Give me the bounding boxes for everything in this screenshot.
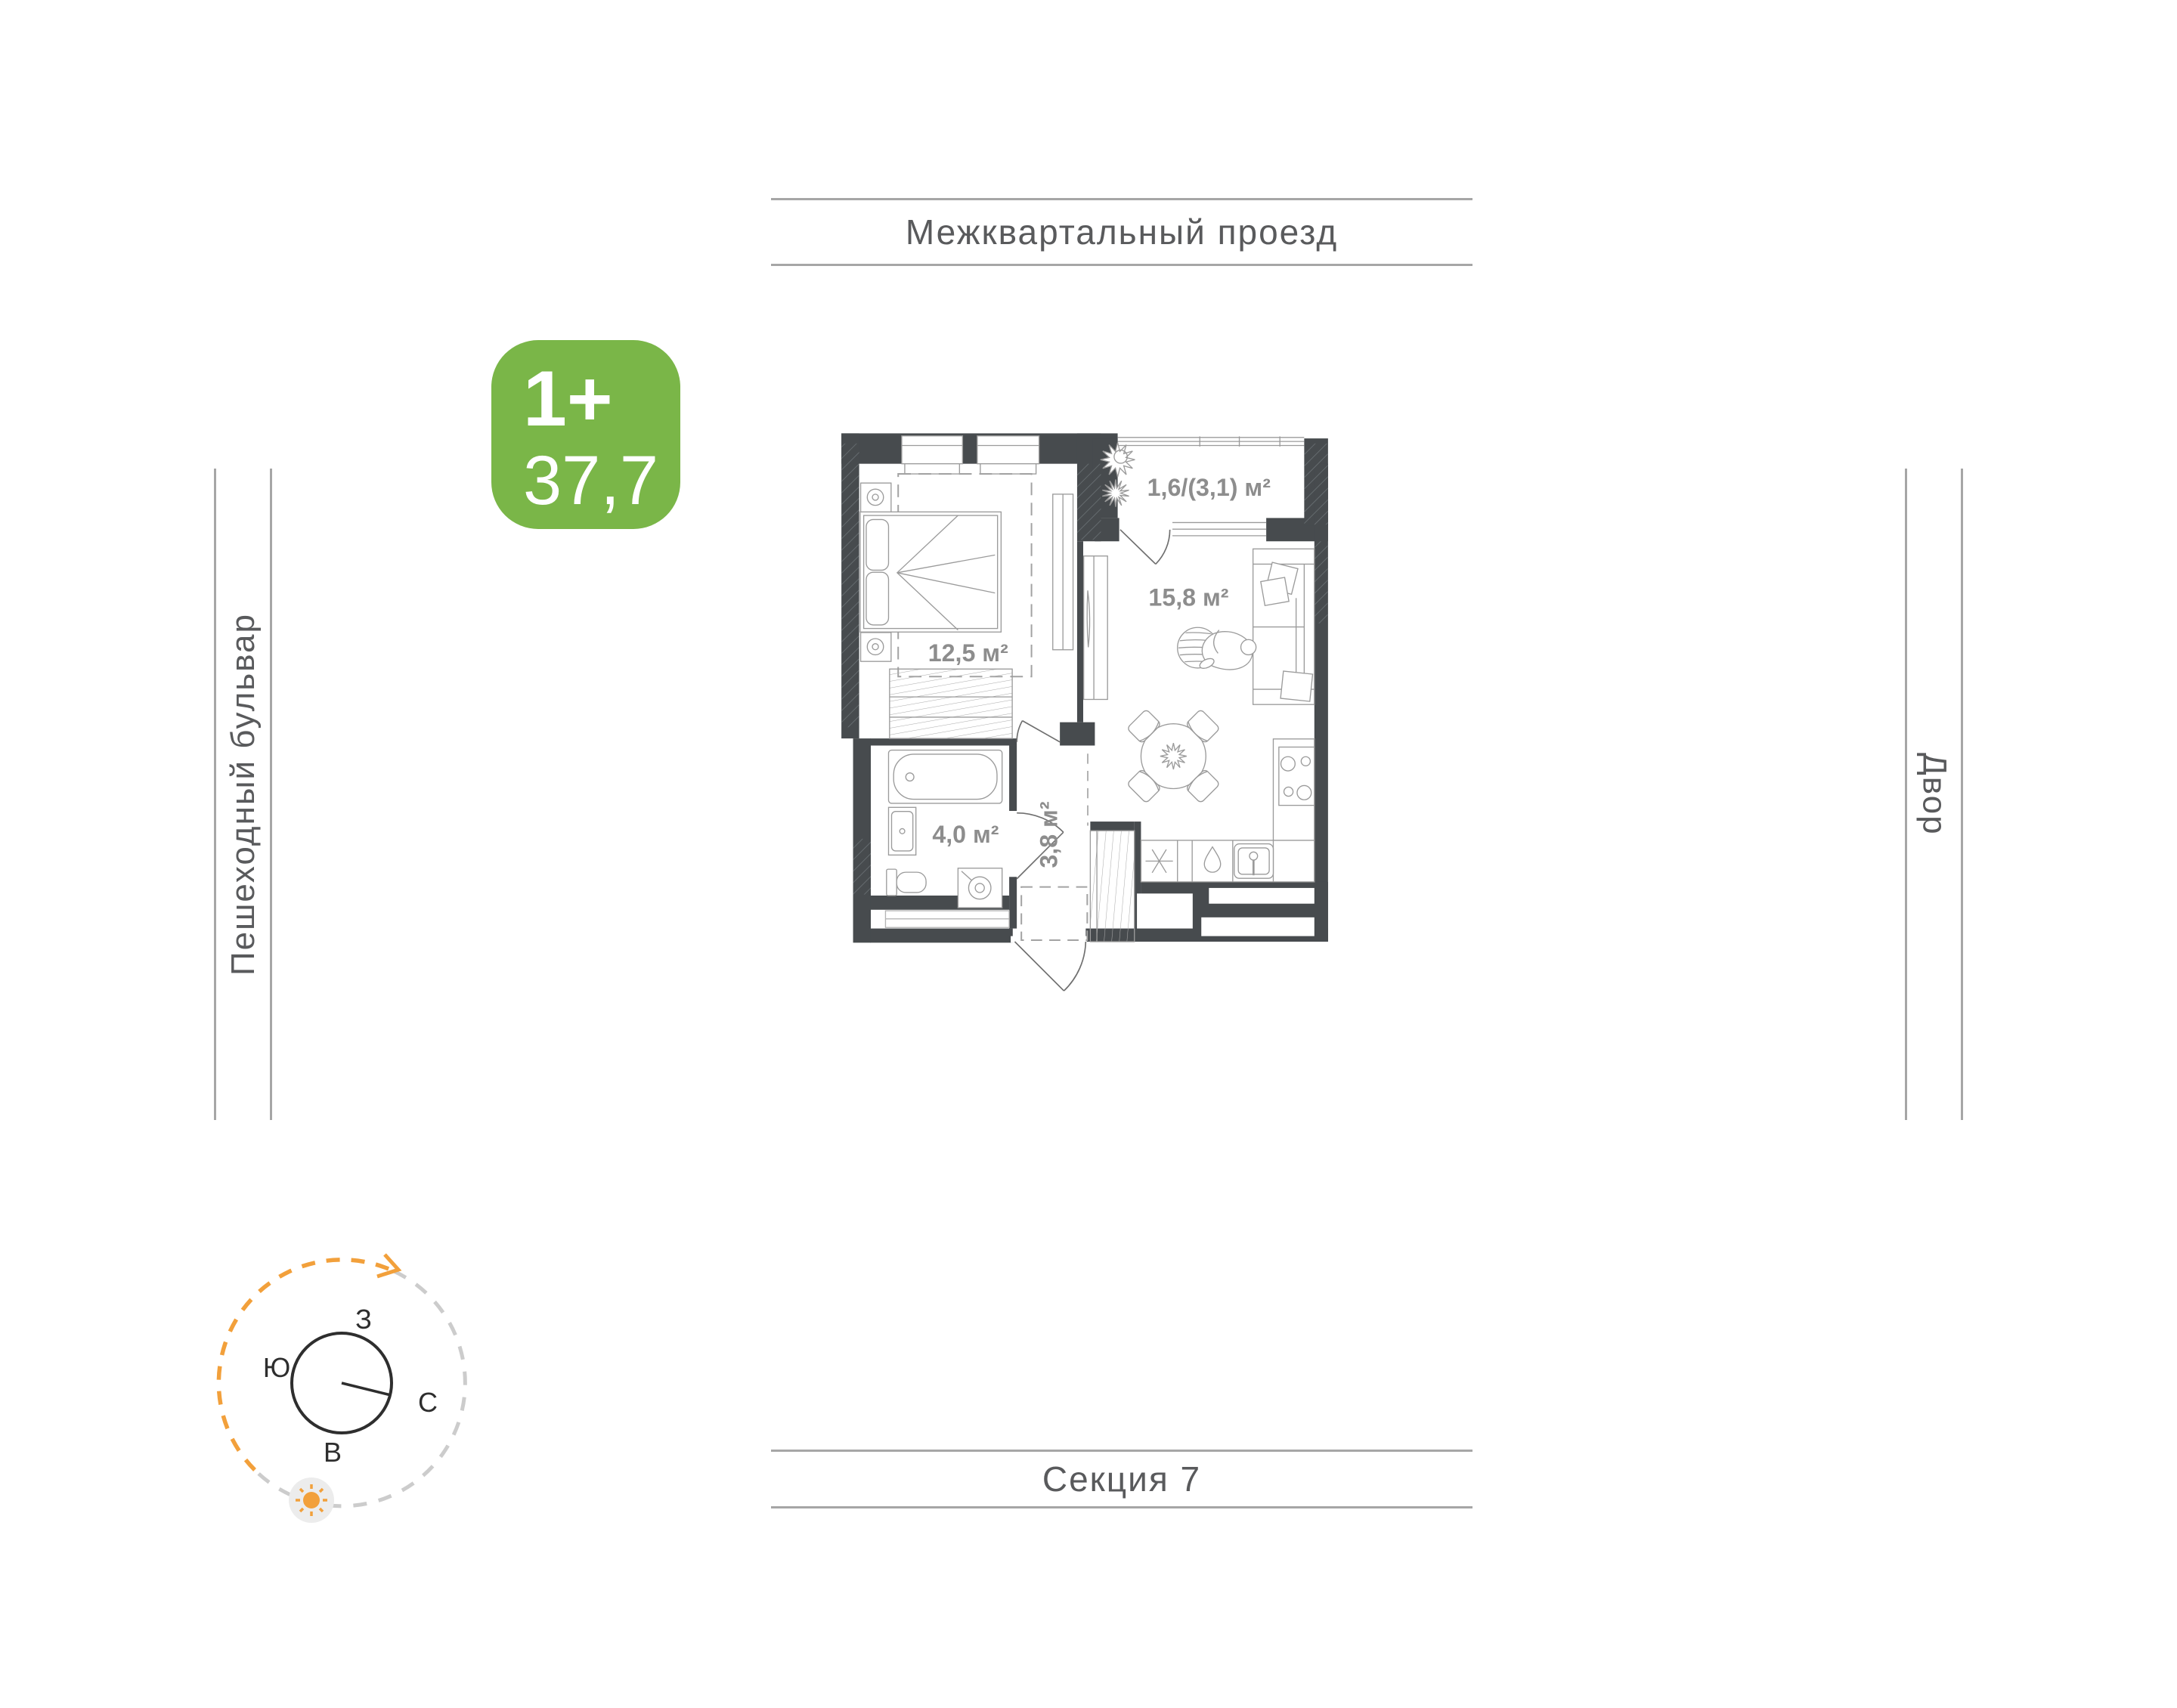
street-label-top: Межквартальный проезд: [771, 198, 1472, 266]
floorplan-page: { "surroundings": { "top_label": "Межква…: [0, 0, 2177, 1708]
compass: З Ю С В: [204, 1224, 491, 1542]
balcony-glazing: [1118, 436, 1305, 446]
compass-south-label: Ю: [263, 1352, 290, 1383]
floor-plan: 12,5 м² 15,8 м² 4,0 м² 3,8 м² 1,6/(3,1) …: [711, 423, 1459, 1285]
section-label-bottom-text: Секция 7: [1042, 1459, 1201, 1499]
street-label-right: Двор: [1905, 469, 1963, 1120]
toilet: [887, 869, 926, 896]
living-area-label: 15,8 м²: [1148, 583, 1228, 611]
nightstand: [861, 483, 891, 512]
street-label-right-text: Двор: [1915, 753, 1953, 836]
pillow: [866, 519, 889, 570]
compass-east-label: В: [324, 1437, 342, 1468]
compass-west-label: З: [355, 1304, 372, 1335]
entrance-door: [1014, 942, 1085, 991]
bathroom-area-label: 4,0 м²: [932, 821, 999, 848]
pillow: [1261, 577, 1289, 605]
nightstand: [861, 633, 891, 661]
kitchen-sink: [1234, 844, 1274, 879]
pillow: [866, 572, 889, 625]
compass-north-label: С: [418, 1387, 438, 1418]
closet: [890, 669, 1012, 738]
bedroom-furniture: [860, 474, 1073, 738]
bathtub: [888, 750, 1002, 803]
stove: [1279, 747, 1315, 806]
living-balcony-window: [1172, 518, 1266, 541]
apartment-type-label: 1+: [523, 360, 680, 438]
street-label-left: Пешеходный бульвар: [214, 469, 272, 1120]
compass-dial: [292, 1333, 392, 1433]
balcony-door: [1120, 530, 1170, 565]
street-label-top-text: Межквартальный проезд: [906, 212, 1338, 252]
balcony-area-label: 1,6/(3,1) м²: [1147, 474, 1271, 501]
bedroom-door: [1017, 721, 1060, 742]
bathroom-sink: [888, 807, 915, 855]
section-label-bottom: Секция 7: [771, 1450, 1472, 1508]
bedroom-area-label: 12,5 м²: [928, 639, 1008, 667]
hallway-area-label: 3,8 м²: [1035, 801, 1062, 868]
apartment-badge: 1+ 37,7: [491, 340, 680, 529]
tv-console: [1084, 556, 1108, 700]
bed: [860, 512, 1001, 632]
wardrobe: [1053, 494, 1073, 650]
washing-machine: [958, 868, 1002, 908]
apartment-area-value: 37,7: [523, 446, 680, 515]
furniture-zone-dashed: [1021, 887, 1087, 940]
street-label-left-text: Пешеходный бульвар: [225, 613, 262, 976]
sofa: [1253, 549, 1315, 704]
